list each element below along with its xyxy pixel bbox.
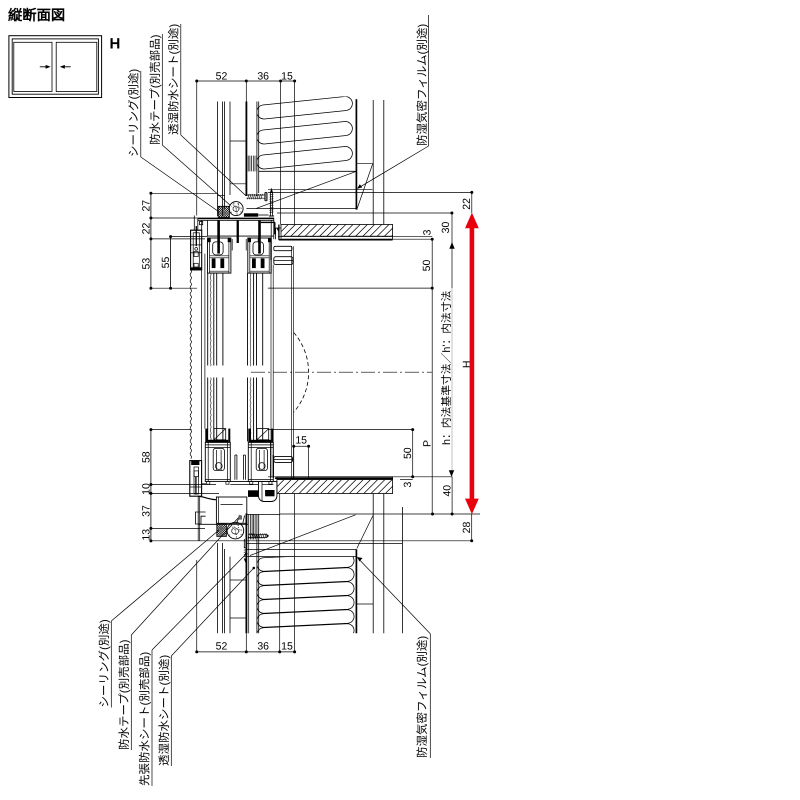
svg-text:防湿気密フィルム(別途): 防湿気密フィルム(別途) <box>416 636 429 758</box>
svg-text:10: 10 <box>140 483 152 495</box>
svg-text:防水テープ(別売部品): 防水テープ(別売部品) <box>118 639 131 750</box>
svg-text:13: 13 <box>140 529 152 541</box>
svg-text:53: 53 <box>140 258 152 270</box>
svg-text:P: P <box>422 440 434 447</box>
svg-text:22: 22 <box>140 223 152 235</box>
svg-text:36: 36 <box>257 641 269 653</box>
svg-text:27: 27 <box>140 200 152 212</box>
svg-text:シーリング(別途): シーリング(別途) <box>98 619 111 707</box>
svg-text:透湿防水シート(別途): 透湿防水シート(別途) <box>168 24 181 135</box>
svg-text:縦断面図: 縦断面図 <box>8 7 65 24</box>
svg-text:15: 15 <box>281 641 293 653</box>
svg-text:52: 52 <box>216 641 228 653</box>
svg-text:シーリング(別途): シーリング(別途) <box>128 69 141 157</box>
svg-text:3: 3 <box>402 482 414 488</box>
svg-text:防湿気密フィルム(別途): 防湿気密フィルム(別途) <box>416 24 429 146</box>
svg-text:55: 55 <box>160 257 172 269</box>
svg-text:50: 50 <box>421 260 433 272</box>
svg-text:15: 15 <box>281 70 293 82</box>
svg-text:3: 3 <box>422 229 434 235</box>
svg-text:15: 15 <box>295 435 307 447</box>
svg-text:先張防水シート(別売部品): 先張防水シート(別売部品) <box>139 652 152 786</box>
svg-text:30: 30 <box>440 222 452 234</box>
svg-text:28: 28 <box>461 522 473 534</box>
svg-text:h：内法基準寸法／h'：内法寸法: h：内法基準寸法／h'：内法寸法 <box>440 290 453 445</box>
svg-text:58: 58 <box>140 451 152 463</box>
svg-text:36: 36 <box>257 70 269 82</box>
svg-text:透湿防水シート(別途): 透湿防水シート(別途) <box>158 655 171 766</box>
svg-text:H: H <box>110 36 121 53</box>
svg-text:40: 40 <box>441 485 453 497</box>
svg-text:防水テープ(別売部品): 防水テープ(別売部品) <box>149 34 162 145</box>
svg-text:22: 22 <box>461 198 473 210</box>
svg-text:50: 50 <box>402 447 414 459</box>
svg-text:52: 52 <box>216 70 228 82</box>
svg-text:37: 37 <box>140 505 152 517</box>
